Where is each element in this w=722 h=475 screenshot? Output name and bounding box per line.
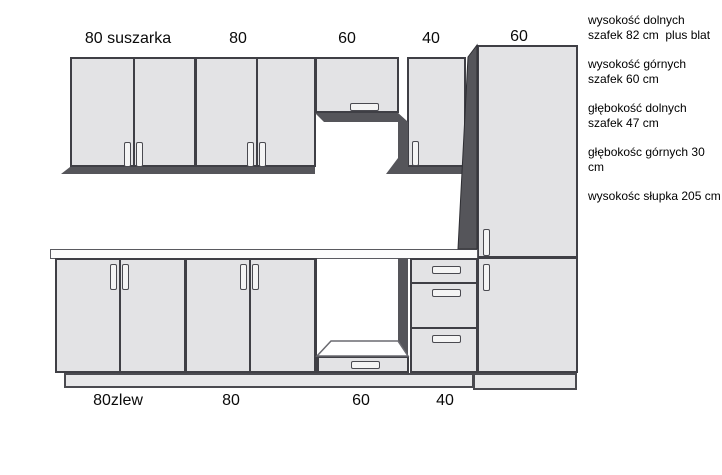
tall-cabinet-60 xyxy=(477,45,578,373)
hood-recess-underside xyxy=(315,113,408,122)
door-handle xyxy=(110,264,117,290)
annotation-lower-cabinet-height: wysokość dolnych szafek 82 cm plus blat xyxy=(588,13,722,43)
door-split-line xyxy=(479,256,576,259)
door-handle xyxy=(124,142,131,167)
door-handle xyxy=(483,264,490,291)
door-split-line xyxy=(249,260,251,371)
upper-label-80: 80 xyxy=(229,30,247,48)
base-cabinet-40-drawers xyxy=(410,258,478,373)
base-plinth xyxy=(64,373,474,388)
annotation-lower-cabinet-depth: głębokość dolnych szafek 47 cm xyxy=(588,101,722,131)
kitchen-layout-diagram: 80 suszarka 80 60 40 60 80zlew 80 60 40 … xyxy=(0,0,722,475)
drawer-handle xyxy=(432,289,461,297)
tall-label-60: 60 xyxy=(510,28,528,46)
annotation-block: wysokość dolnych szafek 82 cm plus blat … xyxy=(588,13,722,218)
door-split-line xyxy=(133,59,135,165)
drawer-handle xyxy=(432,335,461,343)
base-cabinet-80 xyxy=(185,258,316,373)
door-handle xyxy=(483,229,490,256)
door-split-line xyxy=(119,260,121,371)
door-handle xyxy=(240,264,247,290)
lower-label-80-zlew: 80zlew xyxy=(93,392,143,410)
base-cabinet-60-bottom-drawer xyxy=(317,356,409,373)
upper-cabinet-underside-shadow xyxy=(61,167,315,174)
upper-cabinet-60-short xyxy=(315,57,399,113)
door-handle xyxy=(247,142,254,167)
upper-cabinet-underside-shadow xyxy=(407,167,465,174)
hood-recess-side-panel xyxy=(386,113,408,174)
drawer-handle xyxy=(351,361,380,369)
lower-label-80: 80 xyxy=(222,392,240,410)
lower-label-60: 60 xyxy=(352,392,370,410)
upper-cabinet-40 xyxy=(407,57,466,167)
base-cabinet-80-zlew xyxy=(55,258,186,373)
upper-label-60: 60 xyxy=(338,30,356,48)
upper-cabinet-80-suszarka xyxy=(70,57,196,167)
drawer-split-line xyxy=(412,327,476,329)
upper-label-40: 40 xyxy=(422,30,440,48)
door-handle xyxy=(259,142,266,167)
door-handle xyxy=(122,264,129,290)
upper-label-80-suszarka: 80 suszarka xyxy=(85,30,171,48)
door-handle xyxy=(252,264,259,290)
door-handle xyxy=(412,141,419,166)
annotation-tall-cabinet-height: wysokośc słupka 205 cm xyxy=(588,189,722,204)
door-handle xyxy=(136,142,143,167)
annotation-upper-cabinet-height: wysokość górnych szafek 60 cm xyxy=(588,57,722,87)
drawer-handle xyxy=(432,266,461,274)
annotation-upper-cabinet-depth: głębokośc górnych 30 cm xyxy=(588,145,722,175)
tall-cabinet-plinth xyxy=(473,373,577,390)
door-handle xyxy=(350,103,379,111)
lower-label-40: 40 xyxy=(436,392,454,410)
drawer-split-line xyxy=(412,282,476,284)
upper-cabinet-80 xyxy=(195,57,316,167)
door-split-line xyxy=(256,59,258,165)
